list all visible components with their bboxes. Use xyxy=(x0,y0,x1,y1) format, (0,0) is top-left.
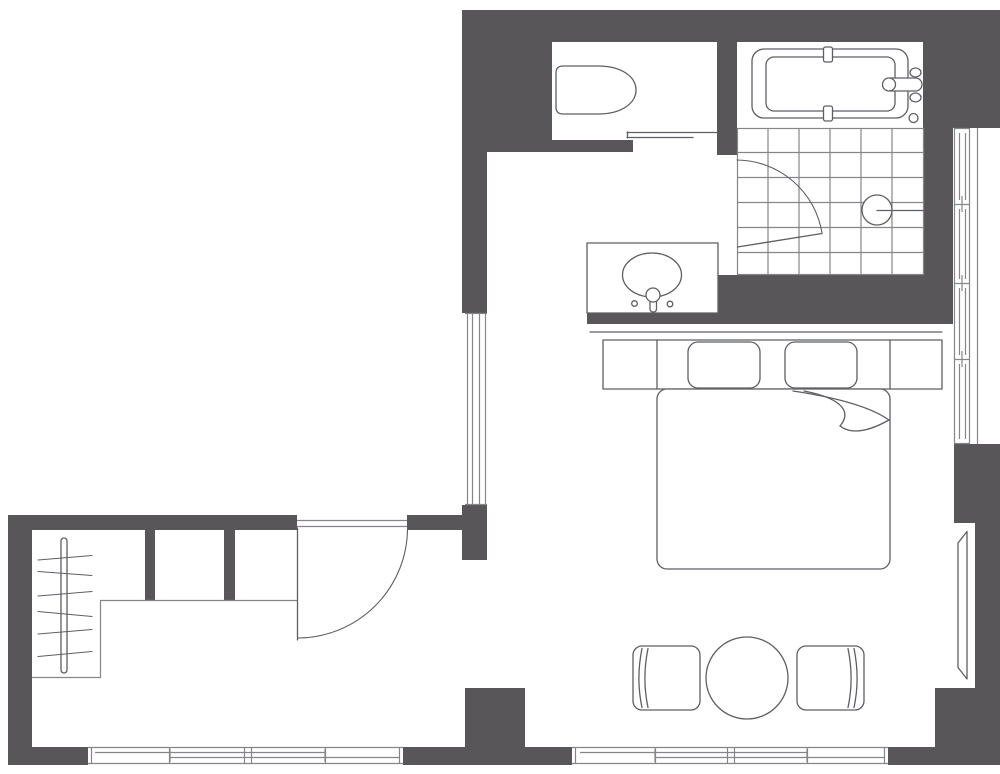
wall-bottom-right-band xyxy=(888,747,1000,765)
wall-left-column xyxy=(462,10,487,313)
mattress xyxy=(657,389,890,569)
wall-entry-tblock xyxy=(462,505,487,560)
wall-right-lower xyxy=(954,444,1000,523)
tub-control-3 xyxy=(909,114,918,123)
tub-overflow-top xyxy=(824,47,833,62)
wall-bottom-right-block xyxy=(935,688,1000,747)
round-table xyxy=(706,637,788,719)
wall-right-niche-side xyxy=(975,523,1000,688)
radiator-niche xyxy=(958,532,967,680)
wall-bottom-mid xyxy=(403,747,572,765)
pillow-left xyxy=(688,342,760,388)
bathtub xyxy=(752,47,922,123)
tub-control-2 xyxy=(910,93,921,102)
armchair-right xyxy=(797,646,864,710)
wall-shower-bottom xyxy=(718,275,953,324)
tub-faucet-base xyxy=(883,78,896,91)
basin-tap-left xyxy=(632,301,638,307)
wall-entry-right xyxy=(407,515,462,530)
armchair-left xyxy=(633,646,700,710)
basin-tap-right xyxy=(667,301,673,307)
toilet xyxy=(556,66,636,114)
wall-top-right-corner xyxy=(923,10,1000,128)
floor-plan xyxy=(0,0,1000,774)
toilet-bowl xyxy=(556,66,636,114)
wall-bottom-left-corner xyxy=(8,747,88,765)
tub-overflow-bottom xyxy=(824,106,833,121)
basin-faucet xyxy=(646,288,660,302)
wall-below-toilet xyxy=(487,140,633,152)
wall-closet-pillar-1 xyxy=(145,530,155,600)
dining-set xyxy=(633,637,864,719)
wall-leftwing-top xyxy=(8,515,297,530)
pillow-right xyxy=(785,342,857,388)
wall-toilet-tub-divider xyxy=(717,42,737,155)
wall-leftwing-left xyxy=(8,515,32,765)
headboard-band xyxy=(603,340,942,389)
tub-control-1 xyxy=(910,68,921,77)
washbasin-vanity xyxy=(587,243,718,313)
tub-inner xyxy=(766,57,895,111)
wall-bottom-pillar xyxy=(465,688,525,747)
wall-closet-pillar-2 xyxy=(224,530,235,600)
radiator-panel xyxy=(958,532,967,680)
